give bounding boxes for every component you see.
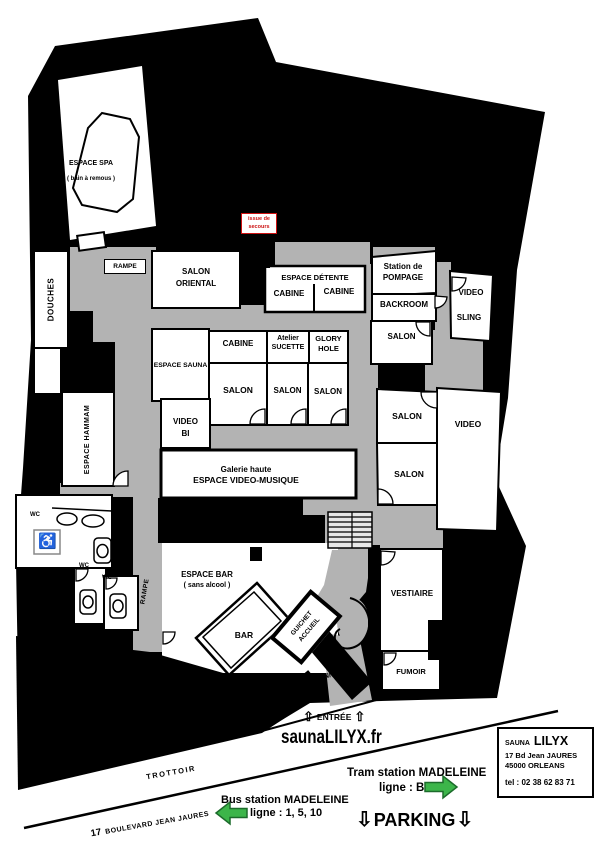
room-salon-mid-3: SALON — [308, 387, 348, 397]
brand-small: SAUNA — [505, 740, 530, 749]
info-phone: tel : 02 38 62 83 71 — [505, 778, 592, 788]
bar-counter-label: BAR — [226, 630, 262, 641]
room-espace-hammam: ESPACE HAMMAM — [62, 392, 114, 486]
room-video-right: VIDEO — [437, 419, 499, 430]
room-cabine-center: CABINE — [209, 339, 267, 349]
entrance-up-arrow-icon: ⇧ — [354, 709, 365, 725]
parking-down-arrow-icon: ⇩ — [456, 808, 473, 833]
brand-large: LILYX — [534, 734, 568, 750]
room-espace-spa-note: ( bain à remous ) — [52, 176, 130, 184]
room-fumoir: FUMOIR — [385, 667, 437, 676]
wheelchair-icon: ♿ — [38, 533, 57, 552]
room-video-top: VIDEO — [450, 288, 492, 298]
bus-line-label: ligne : 1, 5, 10 — [250, 807, 322, 821]
tram-line-label: ligne : B — [379, 781, 424, 795]
room-espace-spa: ESPACE SPA — [60, 160, 122, 169]
room-backroom: BACKROOM — [372, 300, 436, 310]
room-cabine-right: CABINE — [314, 287, 364, 297]
parking-down-arrow-icon: ⇩ — [356, 808, 373, 833]
entrance-up-arrow-icon: ⇧ — [303, 709, 314, 725]
room-salon-right-2: SALON — [378, 469, 440, 480]
wc-label-3: WC — [102, 575, 112, 583]
wc-label-2: WC — [79, 563, 89, 571]
room-cabine-left: CABINE — [266, 289, 312, 299]
room-espace-sauna: ESPACE SAUNA — [152, 362, 209, 370]
room-salon-mid-1: SALON — [209, 385, 267, 396]
floor-plan-page: ESPACE SPA ( bain à remous ) RAMPE DOUCH… — [0, 0, 600, 841]
room-salon-oriental: SALON ORIENTAL — [166, 266, 226, 290]
room-galerie-haute: Galerie haute ESPACE VIDEO-MUSIQUE — [168, 465, 324, 486]
bus-station-label: Bus station MADELEINE — [221, 794, 349, 808]
room-sling: SLING — [448, 313, 490, 323]
room-vestiaire: VESTIAIRE — [382, 589, 442, 599]
room-espace-bar: ESPACE BAR ( sans alcool ) — [170, 569, 244, 592]
parking-label: ⇩ PARKING ⇩ — [356, 808, 473, 833]
room-atelier-sucette: Atelier SUCETTE — [266, 334, 310, 352]
room-salon-right-1: SALON — [377, 411, 437, 422]
tram-station-label: Tram station MADELEINE — [347, 766, 486, 780]
info-address-2: 45000 ORLEANS — [505, 761, 592, 770]
room-espace-detente: ESPACE DÉTENTE — [265, 273, 365, 282]
room-glory-hole: GLORY HOLE — [308, 334, 349, 354]
room-salon-backroom: SALON — [371, 332, 432, 342]
info-address-1: 17 Bd Jean JAURES — [505, 751, 592, 760]
room-salon-mid-2: SALON — [267, 386, 308, 396]
ramp-lower-label: RAMPE — [136, 556, 154, 626]
wc-label-1: WC — [30, 512, 40, 520]
contact-info-box: SAUNA LILYX 17 Bd Jean JAURES 45000 ORLE… — [497, 727, 594, 798]
entrance-label: ⇧ ENTRÉE ⇧ — [303, 709, 365, 725]
ramp-upper-label: RAMPE — [104, 259, 146, 274]
website-url: saunaLILYX.fr — [281, 726, 382, 750]
emergency-exit-badge: issue de secours — [241, 213, 277, 234]
room-station-pompage: Station de POMPAGE — [372, 261, 434, 283]
room-video-bi: VIDEO BI — [161, 416, 210, 440]
room-douches: DOUCHES — [34, 251, 68, 348]
